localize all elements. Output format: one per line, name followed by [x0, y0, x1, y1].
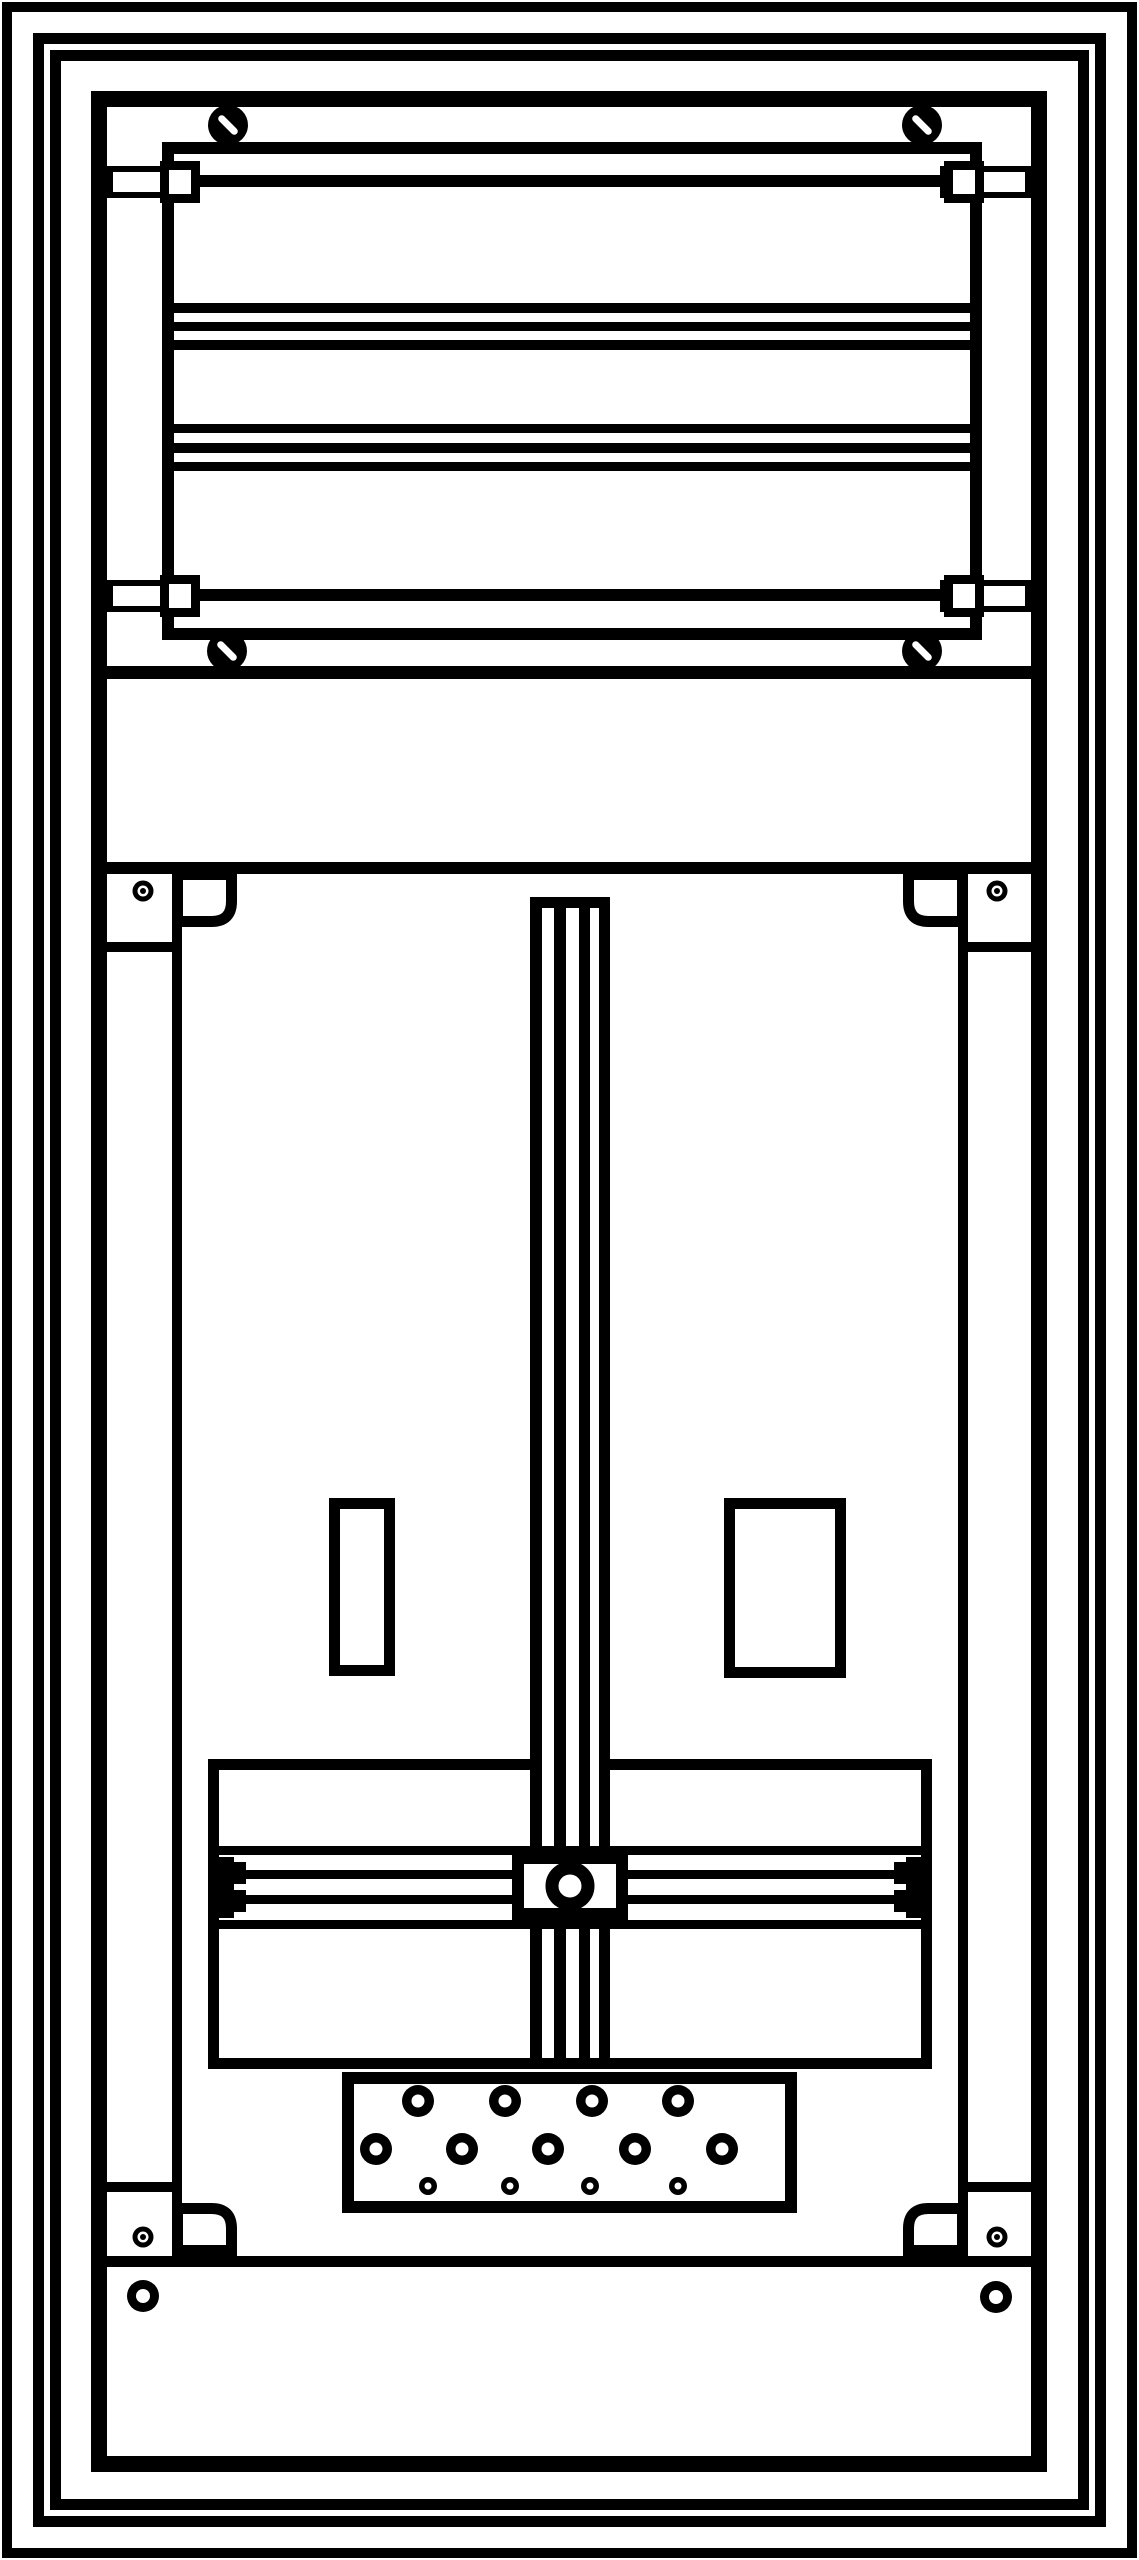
- gland-hole-r2-2-inner: [456, 2143, 469, 2156]
- side-rail-left: [172, 874, 182, 2256]
- bottom-panel-hole-right-inner: [989, 2290, 1003, 2304]
- busbar-a1: [174, 303, 970, 313]
- gland-hole-r1-4-inner: [672, 2095, 685, 2108]
- busbar-a3: [174, 340, 970, 350]
- fixing-hole-mid-left-dot: [140, 2234, 146, 2240]
- gland-hole-r2-1-inner: [370, 2143, 383, 2156]
- busbar-b1: [174, 424, 970, 433]
- busbar-b3: [174, 462, 970, 471]
- crossbar-cap-right-hook-bottom: [894, 1890, 906, 1912]
- gland-hole-r3-1-inner: [425, 2183, 432, 2190]
- fixing-hole-top-right-dot: [994, 888, 1000, 894]
- crossbar-cap-right: [906, 1857, 922, 1918]
- fixing-hole-mid-right-dot: [994, 2234, 1000, 2240]
- rail1-claw-left: [165, 166, 196, 199]
- crossbar-cap-left-hook-top: [234, 1862, 246, 1884]
- rail1-bar: [197, 175, 947, 187]
- gland-hole-r1-1-inner: [412, 2095, 425, 2108]
- din-rail-top-cap: [530, 897, 610, 908]
- divider-bottom: [107, 2256, 1033, 2267]
- divider-middle: [107, 862, 1033, 874]
- busbar-b2: [174, 443, 970, 453]
- meter-cabinet-drawing: [0, 0, 1139, 2560]
- crossbar-cap-left: [218, 1857, 234, 1918]
- gland-hole-r3-2-inner: [507, 2183, 514, 2190]
- side-rail-right: [958, 874, 968, 2256]
- rail1-claw-right: [949, 166, 980, 199]
- crossbar-cap-right-hook-top: [894, 1862, 906, 1884]
- gland-hole-r3-4-inner: [675, 2183, 682, 2190]
- bottom-panel-hole-left-inner: [136, 2289, 150, 2303]
- gland-hole-r3-3-inner: [587, 2183, 594, 2190]
- side-step-bottom-right: [968, 2182, 1033, 2192]
- crossbar-cap-left-hook-bottom: [234, 1890, 246, 1912]
- gland-hole-r2-5-inner: [716, 2143, 729, 2156]
- cabinet-diagram-svg: [0, 0, 1139, 2560]
- gland-hole-r2-3-inner: [542, 2143, 555, 2156]
- side-step-bottom-left: [107, 2182, 172, 2192]
- gland-hole-r1-3-inner: [586, 2095, 599, 2108]
- gland-hole-r2-4-inner: [629, 2143, 642, 2156]
- rail2-claw-right: [949, 580, 980, 613]
- cutout-right: [730, 1504, 841, 1673]
- divider-top: [107, 666, 1033, 679]
- side-step-top-left: [107, 942, 172, 952]
- rail2-claw-left: [165, 580, 196, 613]
- gland-hole-r1-2-inner: [499, 2095, 512, 2108]
- fixing-hole-top-left-dot: [140, 888, 146, 894]
- busbar-a2: [174, 322, 970, 331]
- rail2-bar: [197, 589, 947, 601]
- cutout-left: [335, 1504, 390, 1671]
- side-step-top-right: [968, 942, 1033, 952]
- crossbar-bottom: [218, 1920, 922, 1929]
